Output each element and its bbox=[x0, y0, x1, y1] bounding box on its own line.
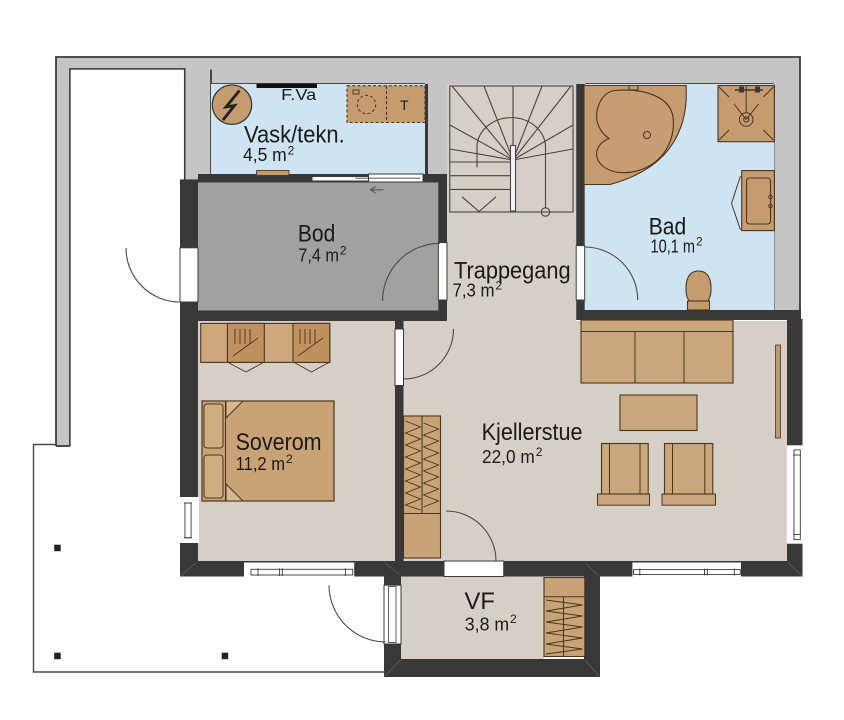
svg-text:Soverom: Soverom bbox=[236, 429, 322, 456]
svg-text:VF: VF bbox=[465, 588, 495, 615]
svg-text:2: 2 bbox=[496, 279, 503, 293]
svg-text:T: T bbox=[400, 97, 409, 113]
svg-text:10,1 m: 10,1 m bbox=[651, 236, 696, 257]
svg-text:Kjellerstue: Kjellerstue bbox=[482, 419, 583, 446]
svg-text:2: 2 bbox=[286, 452, 293, 466]
svg-text:3,8 m: 3,8 m bbox=[465, 613, 509, 634]
svg-text:4,5 m: 4,5 m bbox=[243, 144, 287, 165]
svg-text:7,4 m: 7,4 m bbox=[298, 244, 339, 265]
svg-text:F.Va: F.Va bbox=[281, 87, 316, 104]
svg-text:2: 2 bbox=[510, 612, 517, 626]
svg-text:11,2 m: 11,2 m bbox=[236, 453, 286, 474]
svg-text:22,0 m: 22,0 m bbox=[482, 446, 535, 467]
svg-text:2: 2 bbox=[696, 235, 703, 249]
svg-text:2: 2 bbox=[340, 244, 347, 258]
svg-text:2: 2 bbox=[288, 143, 295, 157]
svg-text:2: 2 bbox=[536, 445, 543, 459]
svg-text:7,3 m: 7,3 m bbox=[453, 280, 495, 301]
